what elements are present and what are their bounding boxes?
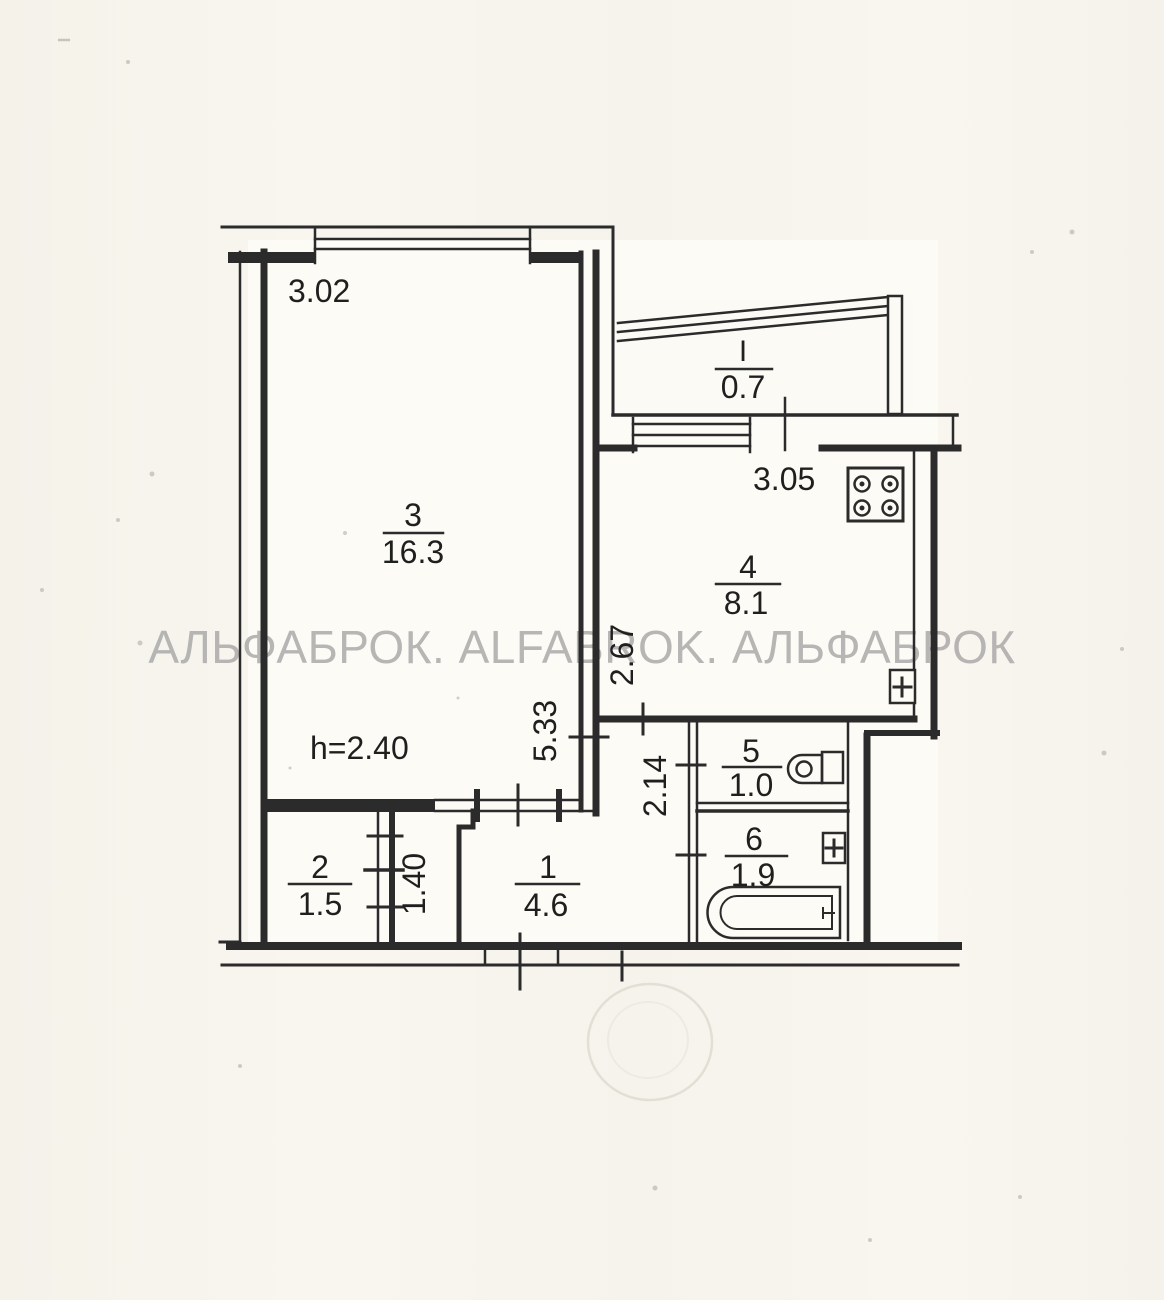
room-6-number: 6	[745, 821, 763, 857]
scanned-floor-plan-page: АЛЬФАБРОК. ALFABROK. АЛЬФАБРОК	[0, 0, 1164, 1300]
room-3-area: 16.3	[382, 534, 444, 570]
ceiling-height-label: h=2.40	[310, 730, 409, 766]
room-5-area: 1.0	[729, 767, 773, 803]
room-5-number: 5	[742, 733, 760, 769]
balcony-area: 0.7	[721, 369, 765, 405]
stamp-circle	[588, 984, 712, 1100]
floor-plan: АЛЬФАБРОК. ALFABROK. АЛЬФАБРОК	[0, 0, 1164, 1300]
room-2-area: 1.5	[298, 886, 342, 922]
dim-hall-depth: 2.14	[637, 755, 673, 817]
dim-room4-depth: 2.67	[604, 624, 640, 686]
dim-room3-width: 3.02	[288, 273, 350, 309]
room-3-number: 3	[404, 497, 422, 533]
dim-room3-depth: 5.33	[527, 700, 563, 762]
room-4-number: 4	[739, 549, 757, 585]
room-2-number: 2	[311, 849, 329, 885]
room-4-area: 8.1	[724, 585, 768, 621]
room-1-number: 1	[539, 849, 557, 885]
room-6-area: 1.9	[731, 857, 775, 893]
room-1-area: 4.6	[524, 887, 568, 923]
kitchen-sink-icon	[890, 670, 915, 703]
dim-closet-depth: 1.40	[396, 853, 432, 915]
balcony-number: I	[739, 335, 747, 368]
dim-room4-width: 3.05	[753, 461, 815, 497]
